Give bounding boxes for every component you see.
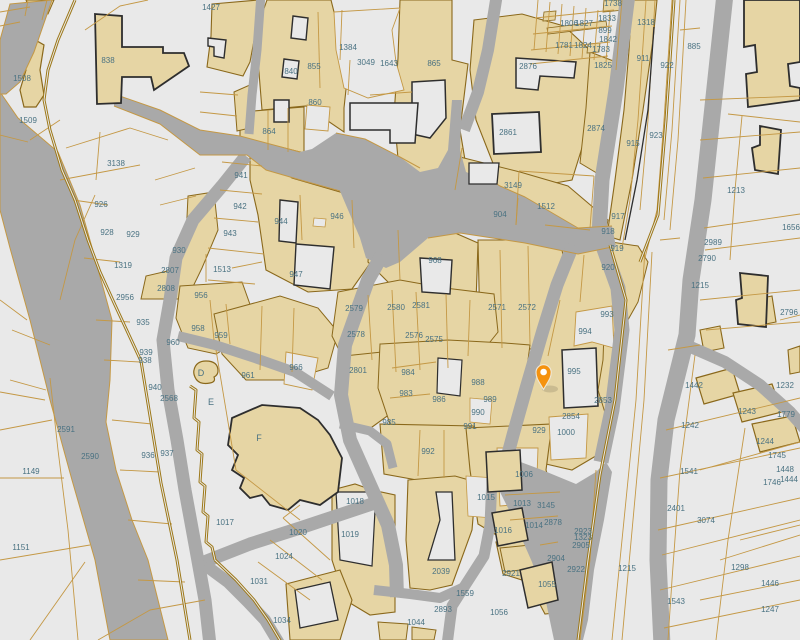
svg-text:1746: 1746	[763, 478, 781, 487]
svg-text:915: 915	[626, 139, 640, 148]
svg-text:1513: 1513	[213, 265, 231, 274]
svg-text:1319: 1319	[114, 261, 132, 270]
svg-text:1508: 1508	[13, 74, 31, 83]
svg-text:1444: 1444	[780, 475, 798, 484]
svg-text:2401: 2401	[667, 504, 685, 513]
svg-text:938: 938	[138, 356, 152, 365]
svg-text:1017: 1017	[216, 518, 234, 527]
svg-text:2575: 2575	[425, 335, 443, 344]
svg-text:1242: 1242	[681, 421, 699, 430]
svg-text:1427: 1427	[202, 3, 220, 12]
svg-text:3149: 3149	[504, 181, 522, 190]
svg-text:1643: 1643	[380, 59, 398, 68]
svg-text:2808: 2808	[157, 284, 175, 293]
svg-text:1213: 1213	[727, 186, 745, 195]
svg-text:920: 920	[601, 263, 615, 272]
svg-text:2801: 2801	[349, 366, 367, 375]
svg-text:2893: 2893	[434, 605, 452, 614]
svg-text:840: 840	[284, 67, 298, 76]
svg-text:1018: 1018	[346, 497, 364, 506]
svg-text:944: 944	[274, 217, 288, 226]
svg-text:2578: 2578	[347, 330, 365, 339]
svg-text:1448: 1448	[776, 465, 794, 474]
svg-text:1779: 1779	[777, 410, 795, 419]
svg-text:989: 989	[483, 395, 497, 404]
svg-text:923: 923	[649, 131, 663, 140]
svg-text:1244: 1244	[756, 437, 774, 446]
svg-text:2904: 2904	[547, 554, 565, 563]
svg-text:1000: 1000	[557, 428, 575, 437]
svg-text:956: 956	[194, 291, 208, 300]
svg-text:929: 929	[532, 426, 546, 435]
svg-text:993: 993	[600, 310, 614, 319]
svg-text:1019: 1019	[341, 530, 359, 539]
svg-text:899: 899	[598, 26, 612, 35]
svg-text:959: 959	[214, 331, 228, 340]
svg-text:1318: 1318	[637, 18, 655, 27]
svg-text:2039: 2039	[432, 567, 450, 576]
svg-text:2580: 2580	[387, 303, 405, 312]
svg-text:904: 904	[493, 210, 507, 219]
svg-text:860: 860	[308, 98, 322, 107]
svg-text:958: 958	[191, 324, 205, 333]
svg-text:961: 961	[241, 371, 255, 380]
svg-text:986: 986	[432, 395, 446, 404]
svg-text:1056: 1056	[490, 608, 508, 617]
svg-text:2878: 2878	[544, 518, 562, 527]
svg-text:3145: 3145	[537, 501, 555, 510]
svg-text:935: 935	[136, 318, 150, 327]
svg-text:947: 947	[289, 270, 303, 279]
svg-text:1512: 1512	[537, 202, 555, 211]
svg-text:1543: 1543	[667, 597, 685, 606]
svg-text:2579: 2579	[345, 304, 363, 313]
svg-text:1559: 1559	[456, 589, 474, 598]
svg-text:1842: 1842	[599, 35, 617, 44]
svg-text:2905: 2905	[572, 541, 590, 550]
svg-text:1020: 1020	[289, 528, 307, 537]
svg-text:937: 937	[160, 449, 174, 458]
svg-text:943: 943	[223, 229, 237, 238]
svg-text:865: 865	[427, 59, 441, 68]
svg-text:940: 940	[148, 383, 162, 392]
svg-text:1509: 1509	[19, 116, 37, 125]
svg-text:941: 941	[234, 171, 248, 180]
svg-text:3049: 3049	[357, 58, 375, 67]
svg-text:2854: 2854	[562, 412, 580, 421]
svg-text:1015: 1015	[477, 493, 495, 502]
svg-text:991: 991	[463, 422, 477, 431]
svg-text:D: D	[198, 368, 205, 378]
svg-text:2572: 2572	[518, 303, 536, 312]
svg-text:2576: 2576	[405, 331, 423, 340]
svg-text:2571: 2571	[488, 303, 506, 312]
svg-text:929: 929	[126, 230, 140, 239]
svg-text:3138: 3138	[107, 159, 125, 168]
svg-text:1298: 1298	[731, 563, 749, 572]
svg-text:1215: 1215	[691, 281, 709, 290]
svg-text:3074: 3074	[697, 516, 715, 525]
svg-text:2590: 2590	[81, 452, 99, 461]
svg-text:1024: 1024	[275, 552, 293, 561]
svg-text:918: 918	[601, 227, 615, 236]
svg-text:1034: 1034	[273, 616, 291, 625]
svg-text:990: 990	[471, 408, 485, 417]
svg-text:2568: 2568	[160, 394, 178, 403]
svg-text:1541: 1541	[680, 467, 698, 476]
svg-text:2876: 2876	[519, 62, 537, 71]
svg-text:1215: 1215	[618, 564, 636, 573]
svg-text:1044: 1044	[407, 618, 425, 627]
svg-text:968: 968	[428, 256, 442, 265]
svg-text:960: 960	[166, 338, 180, 347]
svg-text:1247: 1247	[761, 605, 779, 614]
svg-text:2921: 2921	[502, 569, 520, 578]
svg-text:1833: 1833	[598, 14, 616, 23]
svg-text:985: 985	[382, 418, 396, 427]
svg-text:838: 838	[101, 56, 115, 65]
svg-text:1446: 1446	[761, 579, 779, 588]
svg-text:2591: 2591	[57, 425, 75, 434]
svg-text:1825: 1825	[594, 61, 612, 70]
svg-text:1384: 1384	[339, 43, 357, 52]
svg-text:1745: 1745	[768, 451, 786, 460]
svg-text:946: 946	[330, 212, 344, 221]
svg-text:1016: 1016	[494, 526, 512, 535]
svg-text:2922: 2922	[567, 565, 585, 574]
svg-text:F: F	[256, 433, 262, 443]
svg-text:936: 936	[141, 451, 155, 460]
svg-text:2989: 2989	[704, 238, 722, 247]
svg-text:1006: 1006	[515, 470, 533, 479]
svg-text:930: 930	[172, 246, 186, 255]
svg-text:1781: 1781	[555, 41, 573, 50]
svg-text:2581: 2581	[412, 301, 430, 310]
svg-text:2796: 2796	[780, 308, 798, 317]
svg-text:1442: 1442	[685, 381, 703, 390]
svg-text:1656: 1656	[782, 223, 800, 232]
svg-text:855: 855	[307, 62, 321, 71]
svg-text:1014: 1014	[525, 521, 543, 530]
svg-text:983: 983	[399, 389, 413, 398]
svg-text:1827: 1827	[575, 19, 593, 28]
svg-text:1243: 1243	[738, 407, 756, 416]
svg-text:2853: 2853	[594, 396, 612, 405]
svg-text:1149: 1149	[22, 467, 40, 476]
svg-text:911: 911	[637, 54, 650, 63]
svg-text:2790: 2790	[698, 254, 716, 263]
svg-text:E: E	[208, 397, 214, 407]
svg-text:1738: 1738	[604, 0, 622, 8]
svg-text:984: 984	[401, 368, 415, 377]
svg-text:922: 922	[660, 61, 674, 70]
svg-text:885: 885	[687, 42, 701, 51]
svg-text:966: 966	[289, 363, 303, 372]
svg-text:917: 917	[611, 212, 625, 221]
svg-text:864: 864	[262, 127, 276, 136]
svg-text:1013: 1013	[513, 499, 531, 508]
svg-text:1031: 1031	[250, 577, 268, 586]
svg-text:2874: 2874	[587, 124, 605, 133]
svg-text:926: 926	[94, 200, 108, 209]
svg-text:992: 992	[421, 447, 435, 456]
svg-text:1824: 1824	[574, 41, 592, 50]
svg-text:2861: 2861	[499, 128, 517, 137]
svg-text:1783: 1783	[592, 45, 610, 54]
svg-text:1055: 1055	[538, 580, 556, 589]
svg-text:928: 928	[100, 228, 114, 237]
svg-text:2956: 2956	[116, 293, 134, 302]
svg-text:1232: 1232	[776, 381, 794, 390]
svg-text:2807: 2807	[161, 266, 179, 275]
svg-text:1151: 1151	[12, 543, 30, 552]
svg-text:994: 994	[578, 327, 592, 336]
svg-text:988: 988	[471, 378, 485, 387]
svg-text:995: 995	[567, 367, 581, 376]
svg-text:919: 919	[610, 244, 624, 253]
svg-text:942: 942	[233, 202, 247, 211]
